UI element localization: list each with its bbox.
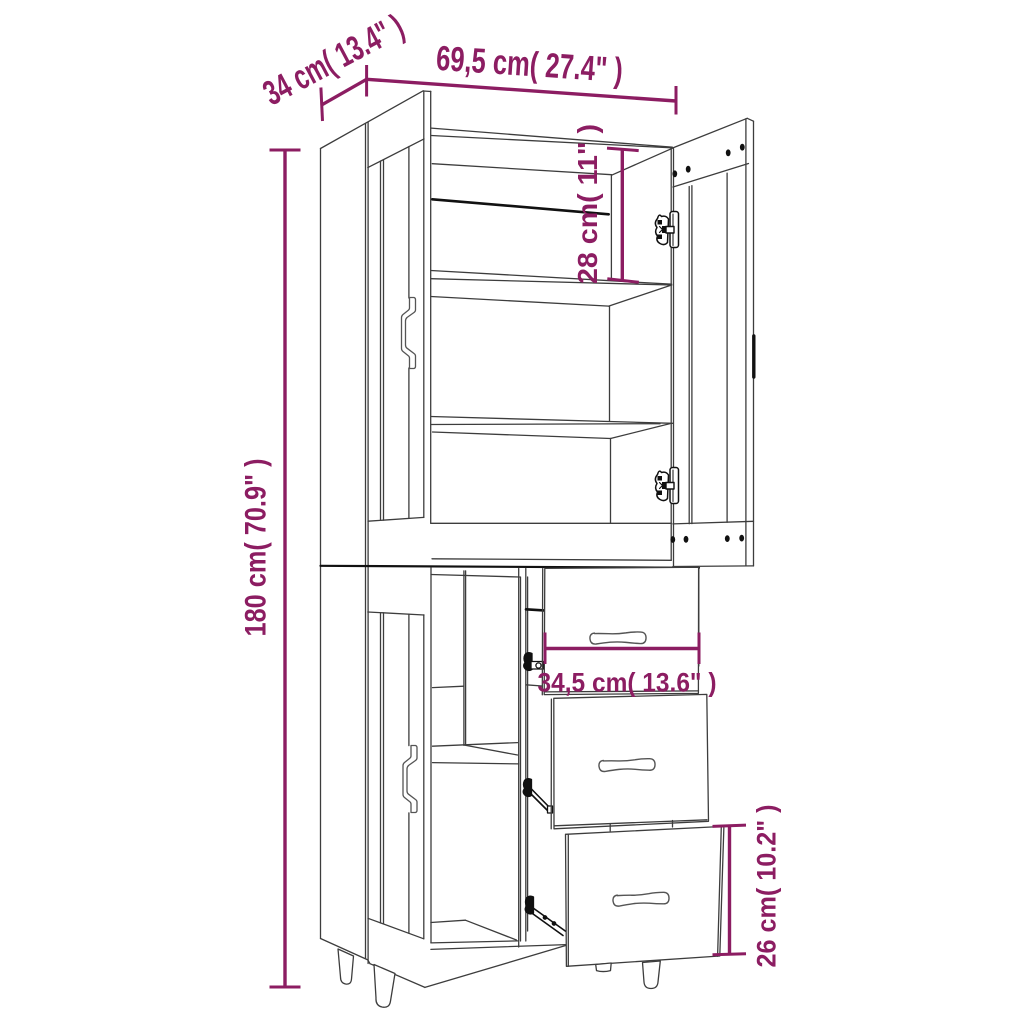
svg-text:26 cm( 10.2" ): 26 cm( 10.2" ): [752, 805, 782, 968]
svg-text:34,5 cm( 13.6" ): 34,5 cm( 13.6" ): [538, 668, 717, 698]
svg-text:28 cm( 11" ): 28 cm( 11" ): [572, 124, 603, 284]
svg-text:180 cm( 70.9" ): 180 cm( 70.9" ): [240, 459, 273, 637]
